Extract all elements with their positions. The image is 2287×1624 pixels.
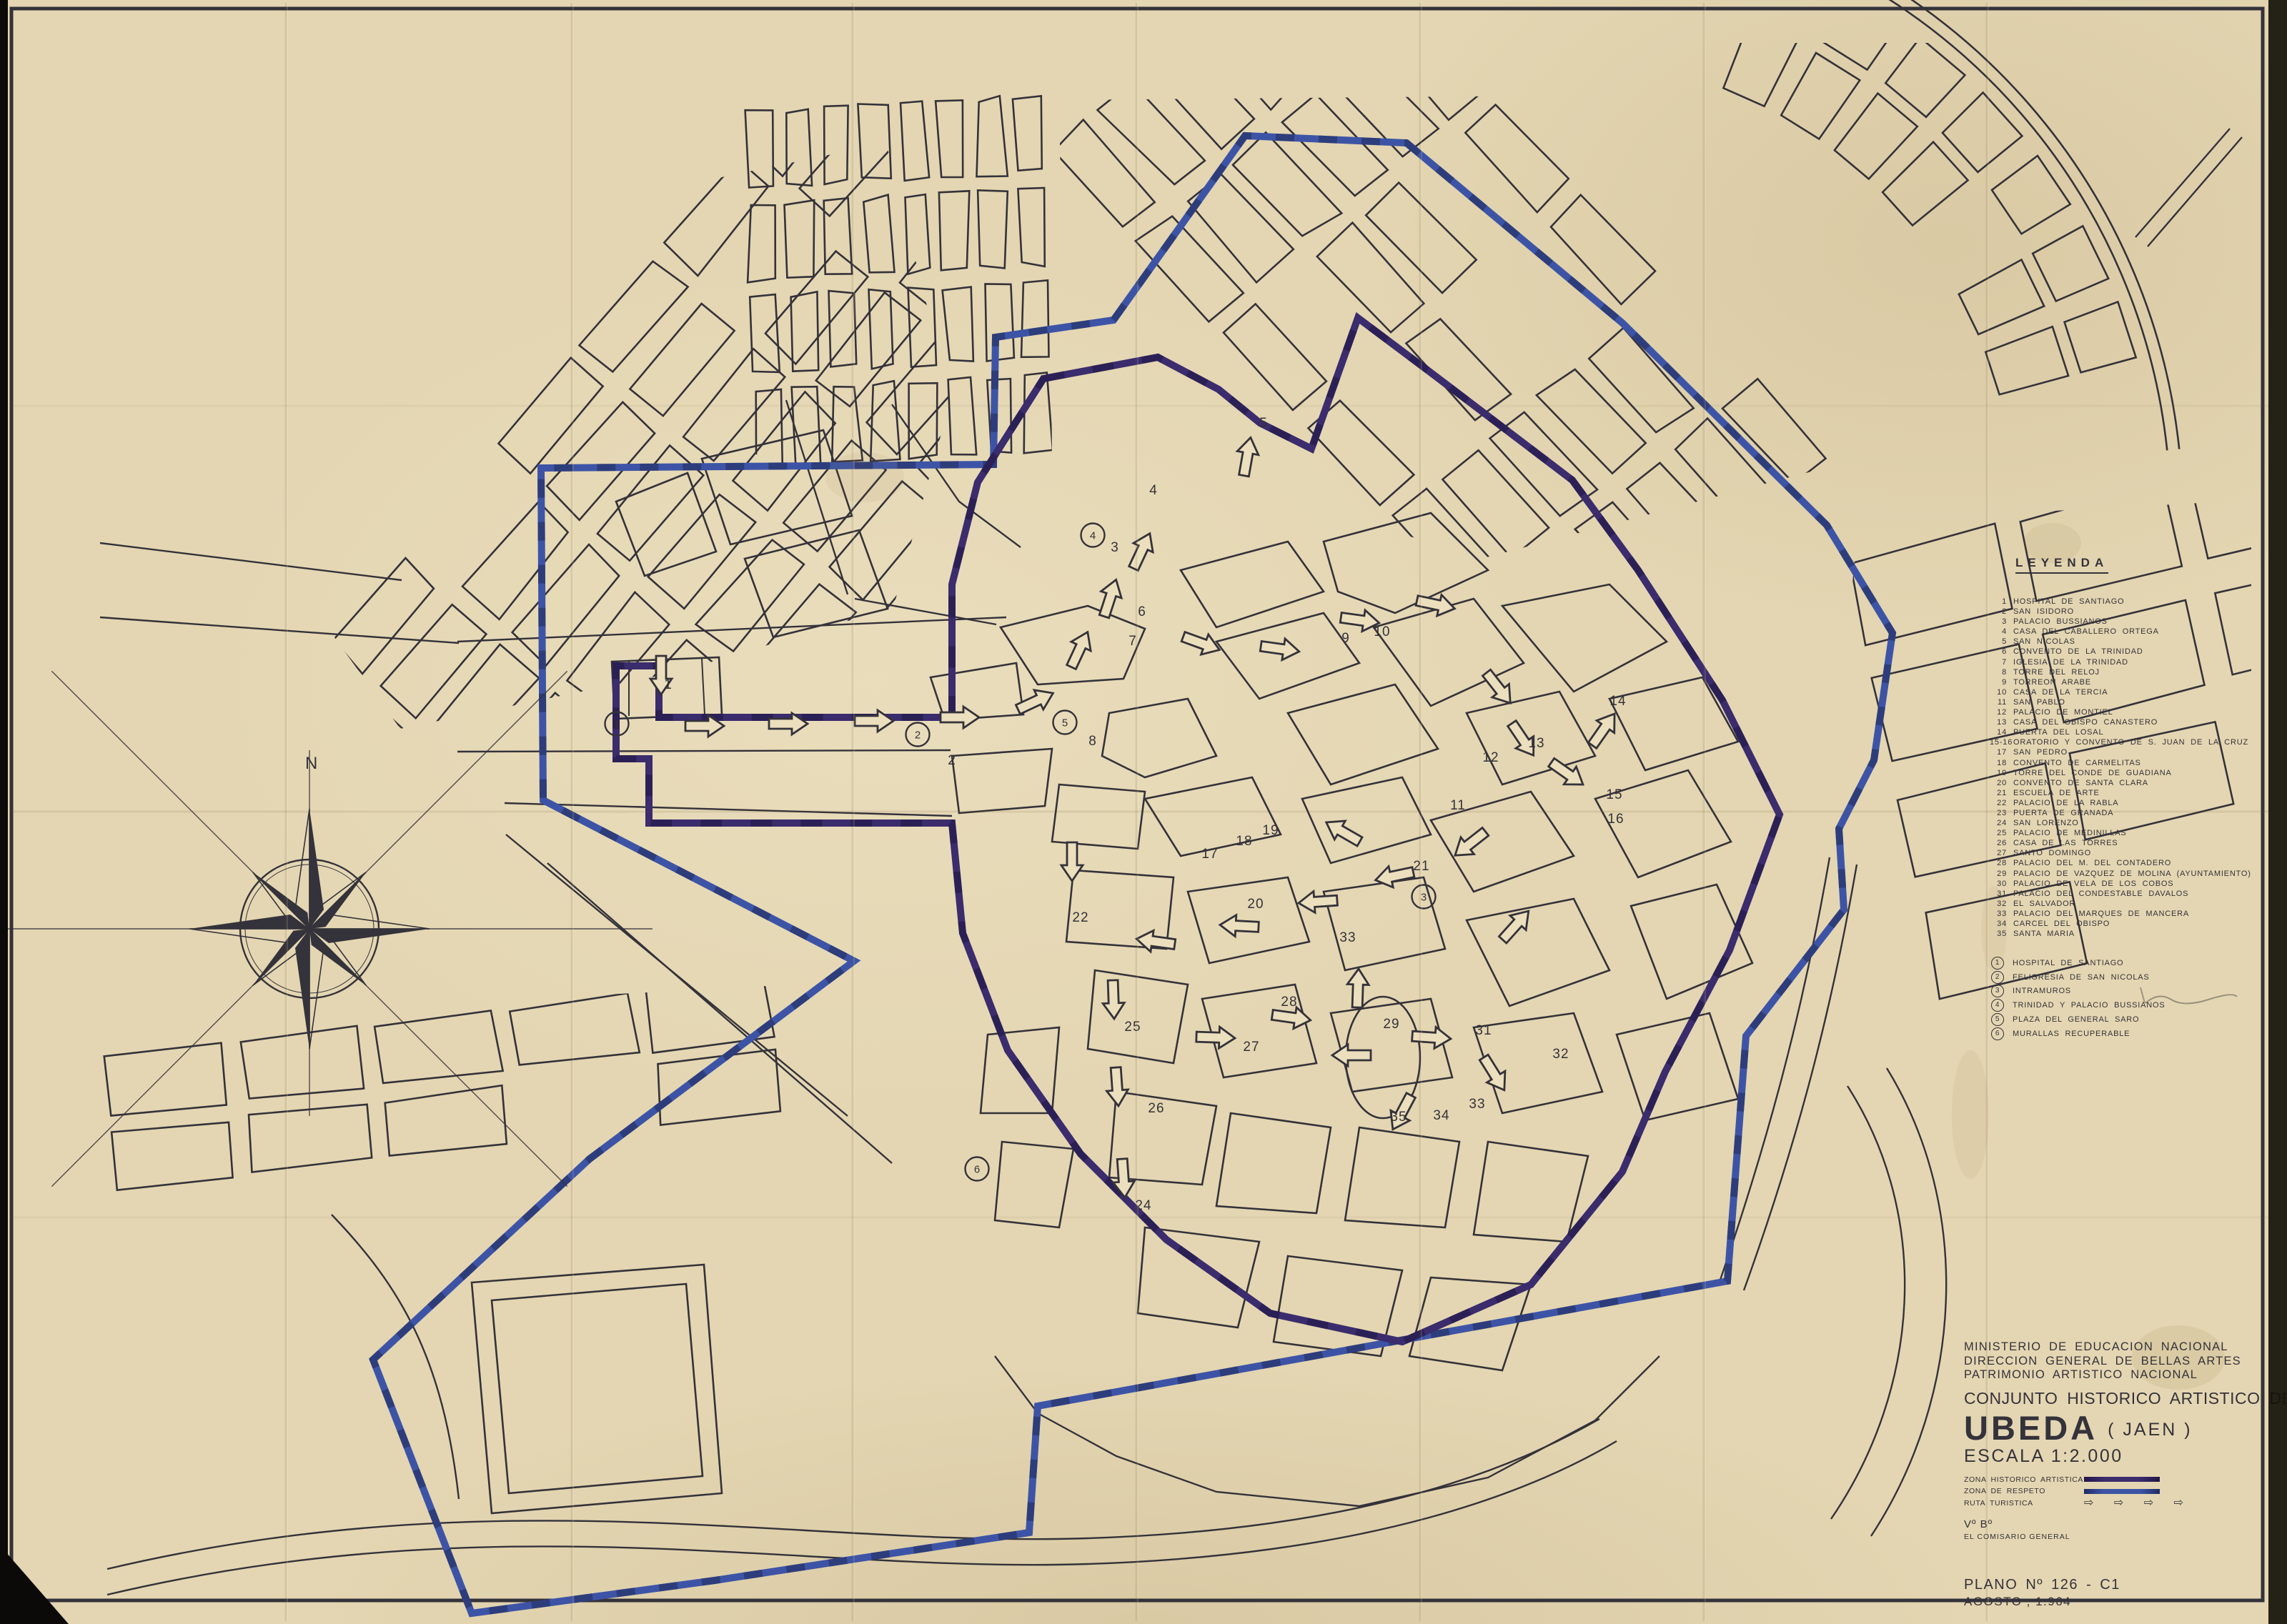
legend-item: 20CONVENTO DE SANTA CLARA: [1990, 778, 2274, 788]
route-arrow-icon: [1102, 980, 1125, 1019]
scale-label: ESCALA 1:2.000: [1964, 1446, 2276, 1467]
map-marker-circled-label: 4: [1090, 530, 1096, 542]
route-arrow-icon: [1346, 968, 1369, 1007]
legend-item: 21ESCUELA DE ARTE: [1990, 788, 2274, 798]
compass-rose: N: [0, 671, 653, 1186]
route-arrow-icon: [1234, 436, 1261, 477]
zone-key-row: RUTA TURISTICA⇨ ⇨ ⇨ ⇨: [1964, 1498, 2276, 1510]
map-marker: 18: [1236, 834, 1252, 849]
route-arrow-icon: [1412, 1025, 1452, 1050]
legend-item: 19TORRE DEL CONDE DE GUADIANA: [1990, 768, 2274, 778]
ministry-line: PATRIMONIO ARTISTICO NACIONAL: [1964, 1368, 2276, 1383]
legend-zone-item: 6MURALLAS RECUPERABLE: [1991, 1027, 2274, 1041]
route-arrow-icon: [1061, 627, 1097, 672]
map-marker: 17: [1201, 847, 1218, 862]
map-marker: 19: [1262, 823, 1279, 838]
route-arrow-icon: [1135, 928, 1176, 955]
map-marker: 31: [1475, 1023, 1492, 1038]
legend-item: 7IGLESIA DE LA TRINIDAD: [1990, 657, 2274, 667]
zone-key: ZONA HISTORICO ARTISTICAZONA DE RESPETOR…: [1964, 1474, 2276, 1510]
map-marker: 5: [1259, 416, 1268, 431]
scan-edge-left: [0, 0, 8, 1624]
legend-item: 33PALACIO DEL MARQUES DE MANCERA: [1990, 909, 2274, 919]
scan-edge-right: [2268, 0, 2287, 1624]
plan-number: PLANO Nº 126 - C1: [1964, 1577, 2276, 1593]
circled-number-icon: 6: [1991, 1027, 2004, 1040]
route-arrow-icon: [941, 707, 979, 728]
circled-number-icon: 2: [1991, 971, 2004, 984]
legend-item: 35SANTA MARIA: [1990, 929, 2274, 939]
map-marker: 33: [1339, 930, 1356, 945]
respect-line-swatch: [2084, 1489, 2160, 1494]
legend-item: 2SAN ISIDORO: [1990, 607, 2274, 617]
legend-item: 23PUERTA DE GRANADA: [1990, 808, 2274, 818]
map-marker: 3: [1111, 540, 1119, 555]
route-arrow-icon: [1259, 636, 1301, 662]
route-arrow-icon: [855, 710, 893, 732]
route-arrow-icon: [1219, 915, 1259, 938]
legend-title: LEYENDA: [2015, 556, 2108, 574]
map-marker: 2: [948, 753, 956, 768]
map-marker: 26: [1148, 1101, 1164, 1116]
map-title-row: UBEDA( JAEN ): [1964, 1408, 2276, 1448]
route-arrow-icon: [1061, 842, 1083, 881]
legend-panel: LEYENDA 1HOSPITAL DE SANTIAGO2SAN ISIDOR…: [1990, 556, 2274, 574]
legend-zone-item: 1HOSPITAL DE SANTIAGO: [1991, 956, 2274, 970]
route-arrow-icon: [1321, 813, 1365, 851]
circled-number-icon: 5: [1991, 1013, 2004, 1026]
route-arrow-icon: [1105, 1067, 1129, 1107]
map-marker: 8: [1088, 734, 1097, 749]
legend-item: 15-16ORATORIO Y CONVENTO DE S. JUAN DE L…: [1990, 737, 2274, 747]
series-title: CONJUNTO HISTORICO ARTISTICO DE: [1964, 1389, 2276, 1408]
map-marker: 13: [1528, 736, 1544, 751]
route-arrow-icon: [1373, 862, 1415, 891]
legend-items: 1HOSPITAL DE SANTIAGO2SAN ISIDORO3PALACI…: [1990, 597, 2274, 939]
map-marker: 35: [1390, 1110, 1407, 1125]
scan-corner-fold: [0, 1545, 69, 1624]
circled-number-icon: 1: [1991, 957, 2004, 970]
map-marker: 27: [1243, 1040, 1259, 1055]
legend-item: 13CASA DEL OBISPO CANASTERO: [1990, 717, 2274, 727]
map-marker: 12: [1482, 750, 1499, 765]
legend-zone-item: 5PLAZA DEL GENERAL SARO: [1991, 1012, 2274, 1027]
route-arrow-icon: [1094, 577, 1126, 620]
map-marker: 22: [1072, 910, 1088, 925]
map-marker: 9: [1341, 631, 1350, 646]
map-marker: 6: [1138, 604, 1146, 619]
legend-item: 17SAN PEDRO: [1990, 747, 2274, 757]
legend-zone-item: 3INTRAMUROS: [1991, 985, 2274, 999]
ministry-line: MINISTERIO DE EDUCACION NACIONAL: [1964, 1340, 2276, 1355]
legend-item: 8TORRE DEL RELOJ: [1990, 667, 2274, 677]
province-name: ( JAEN ): [2108, 1420, 2192, 1440]
legend-item: 3PALACIO BUSSIANOS: [1990, 617, 2274, 627]
route-arrow-icon: [1332, 1045, 1371, 1066]
legend-item: 25PALACIO DE MEDINILLAS: [1990, 828, 2274, 838]
map-marker: 10: [1374, 624, 1390, 639]
legend-item: 27SANTO DOMINGO: [1990, 848, 2274, 858]
legend-item: 34CARCEL DEL OBISPO: [1990, 919, 2274, 929]
historic-line-swatch: [2084, 1477, 2160, 1482]
legend-item: 11SAN PABLO: [1990, 697, 2274, 707]
map-marker-circled-label: 2: [915, 729, 921, 742]
map-marker: 4: [1149, 483, 1158, 498]
map-marker: 20: [1247, 897, 1264, 912]
legend-item: 5SAN NICOLAS: [1990, 637, 2274, 647]
map-marker: 15: [1606, 787, 1622, 802]
map-marker: 16: [1607, 812, 1624, 827]
circled-number-icon: 4: [1991, 999, 2004, 1012]
legend-item: 1HOSPITAL DE SANTIAGO: [1990, 597, 2274, 607]
legend-item: 4CASA DEL CABALLERO ORTEGA: [1990, 627, 2274, 637]
legend-item: 26CASA DE LAS TORRES: [1990, 838, 2274, 848]
legend-item: 24SAN LORENZO: [1990, 818, 2274, 828]
circled-number-icon: 3: [1991, 985, 2004, 997]
city-plan-canvas: N 12345678910111213141516171819202122242…: [0, 0, 2287, 1624]
legend-item: 30PALACIO DE VELA DE LOS COBOS: [1990, 879, 2274, 889]
zone-key-row: ZONA HISTORICO ARTISTICA: [1964, 1474, 2276, 1486]
plan-date: AGOSTO , 1.964: [1964, 1595, 2276, 1609]
map-marker-circled-label: 6: [974, 1164, 980, 1176]
city-name: UBEDA: [1964, 1409, 2098, 1447]
legend-item: 28PALACIO DEL M. DEL CONTADERO: [1990, 858, 2274, 868]
ministry-line: DIRECCION GENERAL DE BELLAS ARTES: [1964, 1355, 2276, 1369]
approval-label: Vº Bº: [1964, 1518, 2276, 1530]
map-marker: 29: [1383, 1017, 1399, 1032]
map-marker: 1: [664, 677, 673, 692]
north-indicator: N: [305, 754, 318, 773]
title-block: MINISTERIO DE EDUCACION NACIONAL DIRECCI…: [1964, 1340, 2276, 1609]
zone-key-row: ZONA DE RESPETO: [1964, 1485, 2276, 1498]
map-marker: 34: [1433, 1108, 1449, 1123]
map-marker: 14: [1609, 694, 1626, 709]
legend-zone-item: 4TRINIDAD Y PALACIO BUSSIANOS: [1991, 998, 2274, 1012]
map-marker-circled-label: 5: [1062, 717, 1068, 729]
route-arrow-icon: [1298, 890, 1338, 914]
approver-label: EL COMISARIO GENERAL: [1964, 1533, 2276, 1541]
legend-item: 14PUERTA DEL LOSAL: [1990, 727, 2274, 737]
route-arrow-icon: [1449, 823, 1492, 864]
map-marker-circled-label: 1: [614, 719, 620, 731]
route-arrow-icon: [1123, 529, 1159, 573]
legend-item: 12PALACIO DE MONTIEL: [1990, 707, 2274, 717]
legend-item: 18CONVENTO DE CARMELITAS: [1990, 758, 2274, 768]
legend-item: 9TORREON ARABE: [1990, 677, 2274, 687]
map-sheet: N 12345678910111213141516171819202122242…: [0, 0, 2287, 1624]
legend-zone-item: 2FELIGRESIA DE SAN NICOLAS: [1991, 970, 2274, 985]
legend-item: 22PALACIO DE LA RABLA: [1990, 798, 2274, 808]
legend-item: 32EL SALVADOR: [1990, 899, 2274, 909]
legend-item: 29PALACIO DE VAZQUEZ DE MOLINA (AYUNTAMI…: [1990, 869, 2274, 879]
legend-item: 6CONVENTO DE LA TRINIDAD: [1990, 647, 2274, 657]
map-marker: 33: [1469, 1097, 1485, 1112]
route-arrow-icon: ⇨ ⇨ ⇨ ⇨: [2084, 1498, 2160, 1508]
legend-zone-items: 1HOSPITAL DE SANTIAGO2FELIGRESIA DE SAN …: [1991, 956, 2274, 1041]
legend-item: 31PALACIO DEL CONDESTABLE DAVALOS: [1990, 889, 2274, 899]
map-marker: 25: [1124, 1020, 1141, 1035]
roads: [100, 129, 2242, 1595]
map-marker: 28: [1281, 995, 1297, 1010]
legend-item: 10CASA DE LA TERCIA: [1990, 687, 2274, 697]
map-marker: 32: [1552, 1047, 1569, 1062]
